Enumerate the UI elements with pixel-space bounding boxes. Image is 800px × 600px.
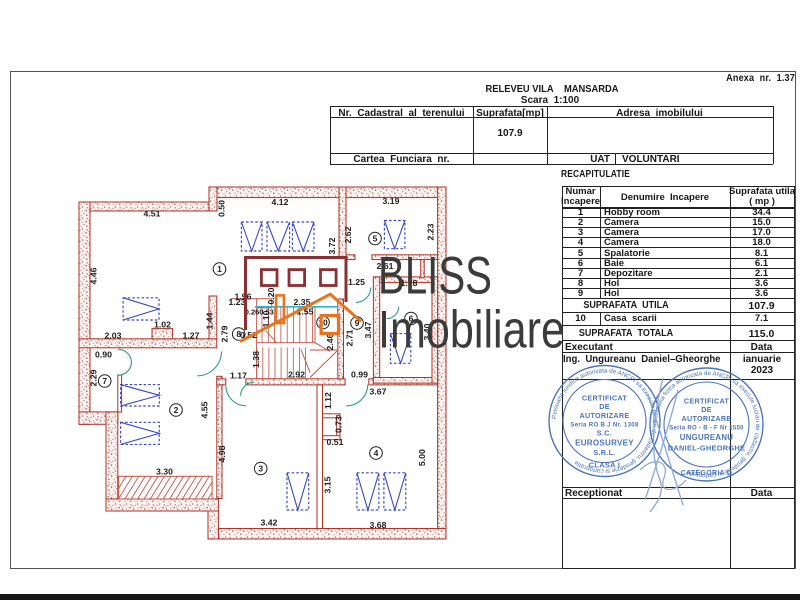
svg-text:4.98: 4.98 (217, 445, 227, 462)
svg-text:0.20: 0.20 (266, 287, 276, 304)
svg-text:1.38: 1.38 (251, 351, 261, 368)
svg-text:4.12: 4.12 (272, 197, 289, 207)
svg-text:4: 4 (374, 448, 379, 458)
svg-text:Seria RO - B - F Nr 1550: Seria RO - B - F Nr 1550 (669, 426, 744, 432)
svg-text:DE: DE (701, 405, 712, 414)
svg-text:CLASA I: CLASA I (589, 460, 620, 469)
svg-text:3.72: 3.72 (327, 237, 337, 254)
svg-text:1.02: 1.02 (154, 320, 171, 330)
svg-text:0.50: 0.50 (217, 200, 227, 217)
svg-text:2.71: 2.71 (344, 329, 354, 346)
svg-text:AUTORIZARE: AUTORIZARE (682, 414, 732, 423)
svg-text:1: 1 (217, 264, 222, 274)
svg-text:EUROSURVEY: EUROSURVEY (575, 439, 634, 448)
svg-text:8: 8 (236, 329, 241, 339)
svg-text:3.42: 3.42 (261, 517, 278, 527)
svg-text:2.79: 2.79 (220, 325, 230, 342)
svg-text:1.17: 1.17 (230, 371, 247, 381)
svg-text:4.55: 4.55 (200, 401, 210, 418)
svg-text:S.C.: S.C. (597, 428, 612, 437)
svg-text:3.30: 3.30 (156, 466, 173, 476)
svg-text:0.99: 0.99 (351, 369, 368, 379)
svg-text:1.12: 1.12 (323, 392, 333, 409)
svg-text:2.29: 2.29 (89, 369, 99, 386)
svg-text:1.25: 1.25 (348, 277, 365, 287)
svg-text:1.44: 1.44 (205, 312, 215, 329)
svg-text:5: 5 (373, 234, 378, 244)
svg-text:Imobiliare: Imobiliare (378, 301, 565, 360)
svg-text:1.27: 1.27 (183, 331, 200, 341)
svg-text:CATEGORIA D: CATEGORIA D (681, 470, 733, 477)
svg-text:2.03: 2.03 (105, 331, 122, 341)
svg-text:1.23: 1.23 (229, 297, 246, 307)
svg-text:DANIEL-GHEORGHE: DANIEL-GHEORGHE (668, 444, 746, 453)
svg-text:3: 3 (258, 464, 263, 474)
svg-text:0.51: 0.51 (327, 437, 344, 447)
svg-text:4.51: 4.51 (144, 209, 161, 219)
svg-text:2: 2 (174, 405, 179, 415)
svg-text:5.00: 5.00 (417, 449, 427, 466)
svg-text:2.92: 2.92 (288, 369, 305, 379)
svg-text:2.23: 2.23 (426, 223, 436, 240)
svg-text:2.62: 2.62 (343, 226, 353, 243)
svg-text:AUTORIZARE: AUTORIZARE (580, 411, 630, 420)
svg-text:S.R.L.: S.R.L. (593, 448, 615, 457)
svg-text:7: 7 (102, 376, 107, 386)
svg-text:DE: DE (599, 402, 610, 411)
svg-text:0.73: 0.73 (333, 416, 343, 433)
svg-text:UNGUREANU: UNGUREANU (680, 433, 733, 442)
svg-text:4.46: 4.46 (89, 267, 99, 284)
svg-text:3.47: 3.47 (363, 321, 373, 338)
svg-text:3.15: 3.15 (323, 476, 333, 493)
svg-text:0.90: 0.90 (95, 350, 112, 360)
svg-text:3.68: 3.68 (370, 520, 387, 530)
svg-text:3.67: 3.67 (370, 386, 387, 396)
svg-text:3.19: 3.19 (383, 196, 400, 206)
svg-text:BLISS: BLISS (378, 247, 492, 306)
svg-text:2.46: 2.46 (325, 333, 335, 350)
